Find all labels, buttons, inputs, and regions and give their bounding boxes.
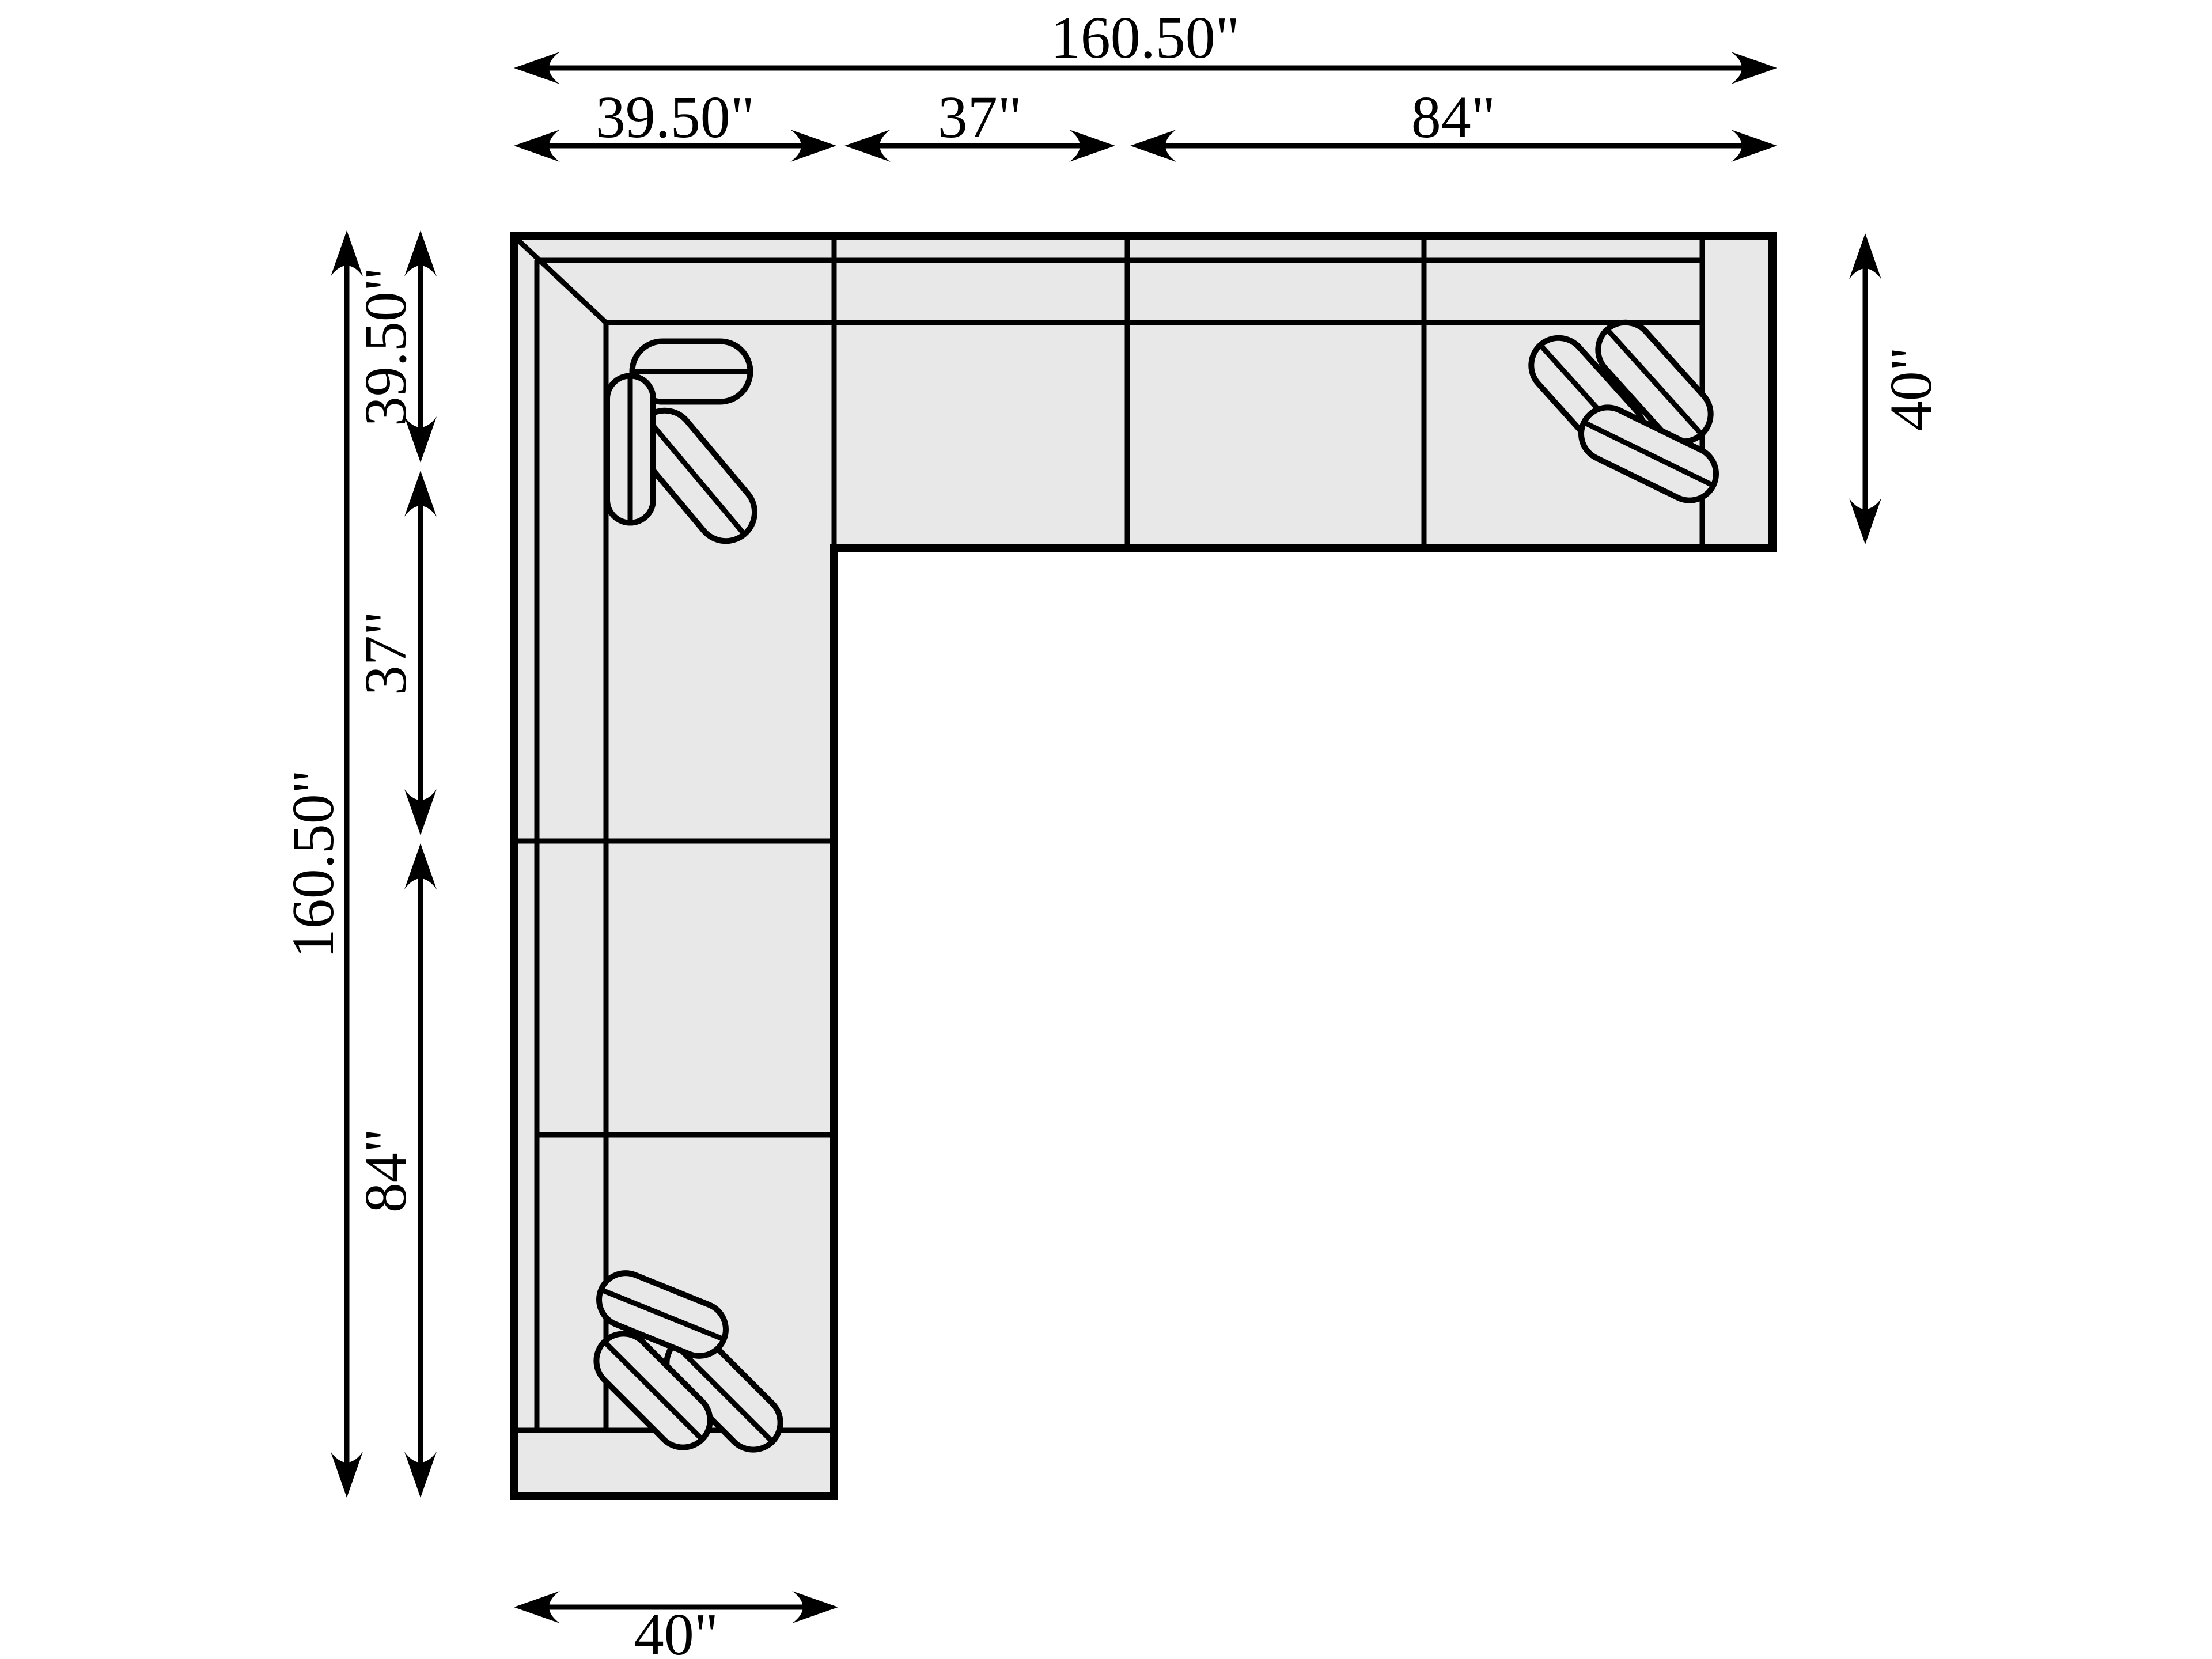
dim-left-seg2-label: 37" — [353, 611, 419, 695]
dim-left-seg1-label: 39.50" — [353, 267, 419, 426]
dim-left-seg2: 37" — [353, 471, 437, 835]
dim-bottom-depth-label: 40" — [634, 1601, 718, 1659]
dim-right-depth-label: 40" — [1878, 347, 1944, 431]
sofa — [514, 236, 1772, 1496]
pillow — [607, 376, 653, 523]
sectional-sofa-dimension-diagram: 160.50" 39.50" 37" 84" 160.50" — [0, 0, 2212, 1659]
dim-top-seg3-label: 84" — [1411, 84, 1495, 150]
dim-top-seg3: 84" — [1130, 84, 1777, 162]
dim-left-seg3: 84" — [353, 843, 437, 1498]
dim-top-seg2: 37" — [844, 84, 1115, 162]
dim-top-overall: 160.50" — [514, 5, 1777, 84]
dim-right-depth: 40" — [1849, 233, 1944, 544]
dim-left-overall-label: 160.50" — [280, 770, 346, 959]
dim-left-overall: 160.50" — [280, 230, 363, 1498]
dim-left-seg3-label: 84" — [353, 1128, 419, 1213]
dim-bottom-depth: 40" — [514, 1591, 838, 1659]
dim-top-seg1-label: 39.50" — [596, 84, 755, 150]
dim-top-overall-label: 160.50" — [1051, 5, 1240, 71]
dim-left-seg1: 39.50" — [353, 230, 437, 463]
dim-top-seg1: 39.50" — [514, 84, 836, 162]
dim-top-seg2-label: 37" — [938, 84, 1022, 150]
